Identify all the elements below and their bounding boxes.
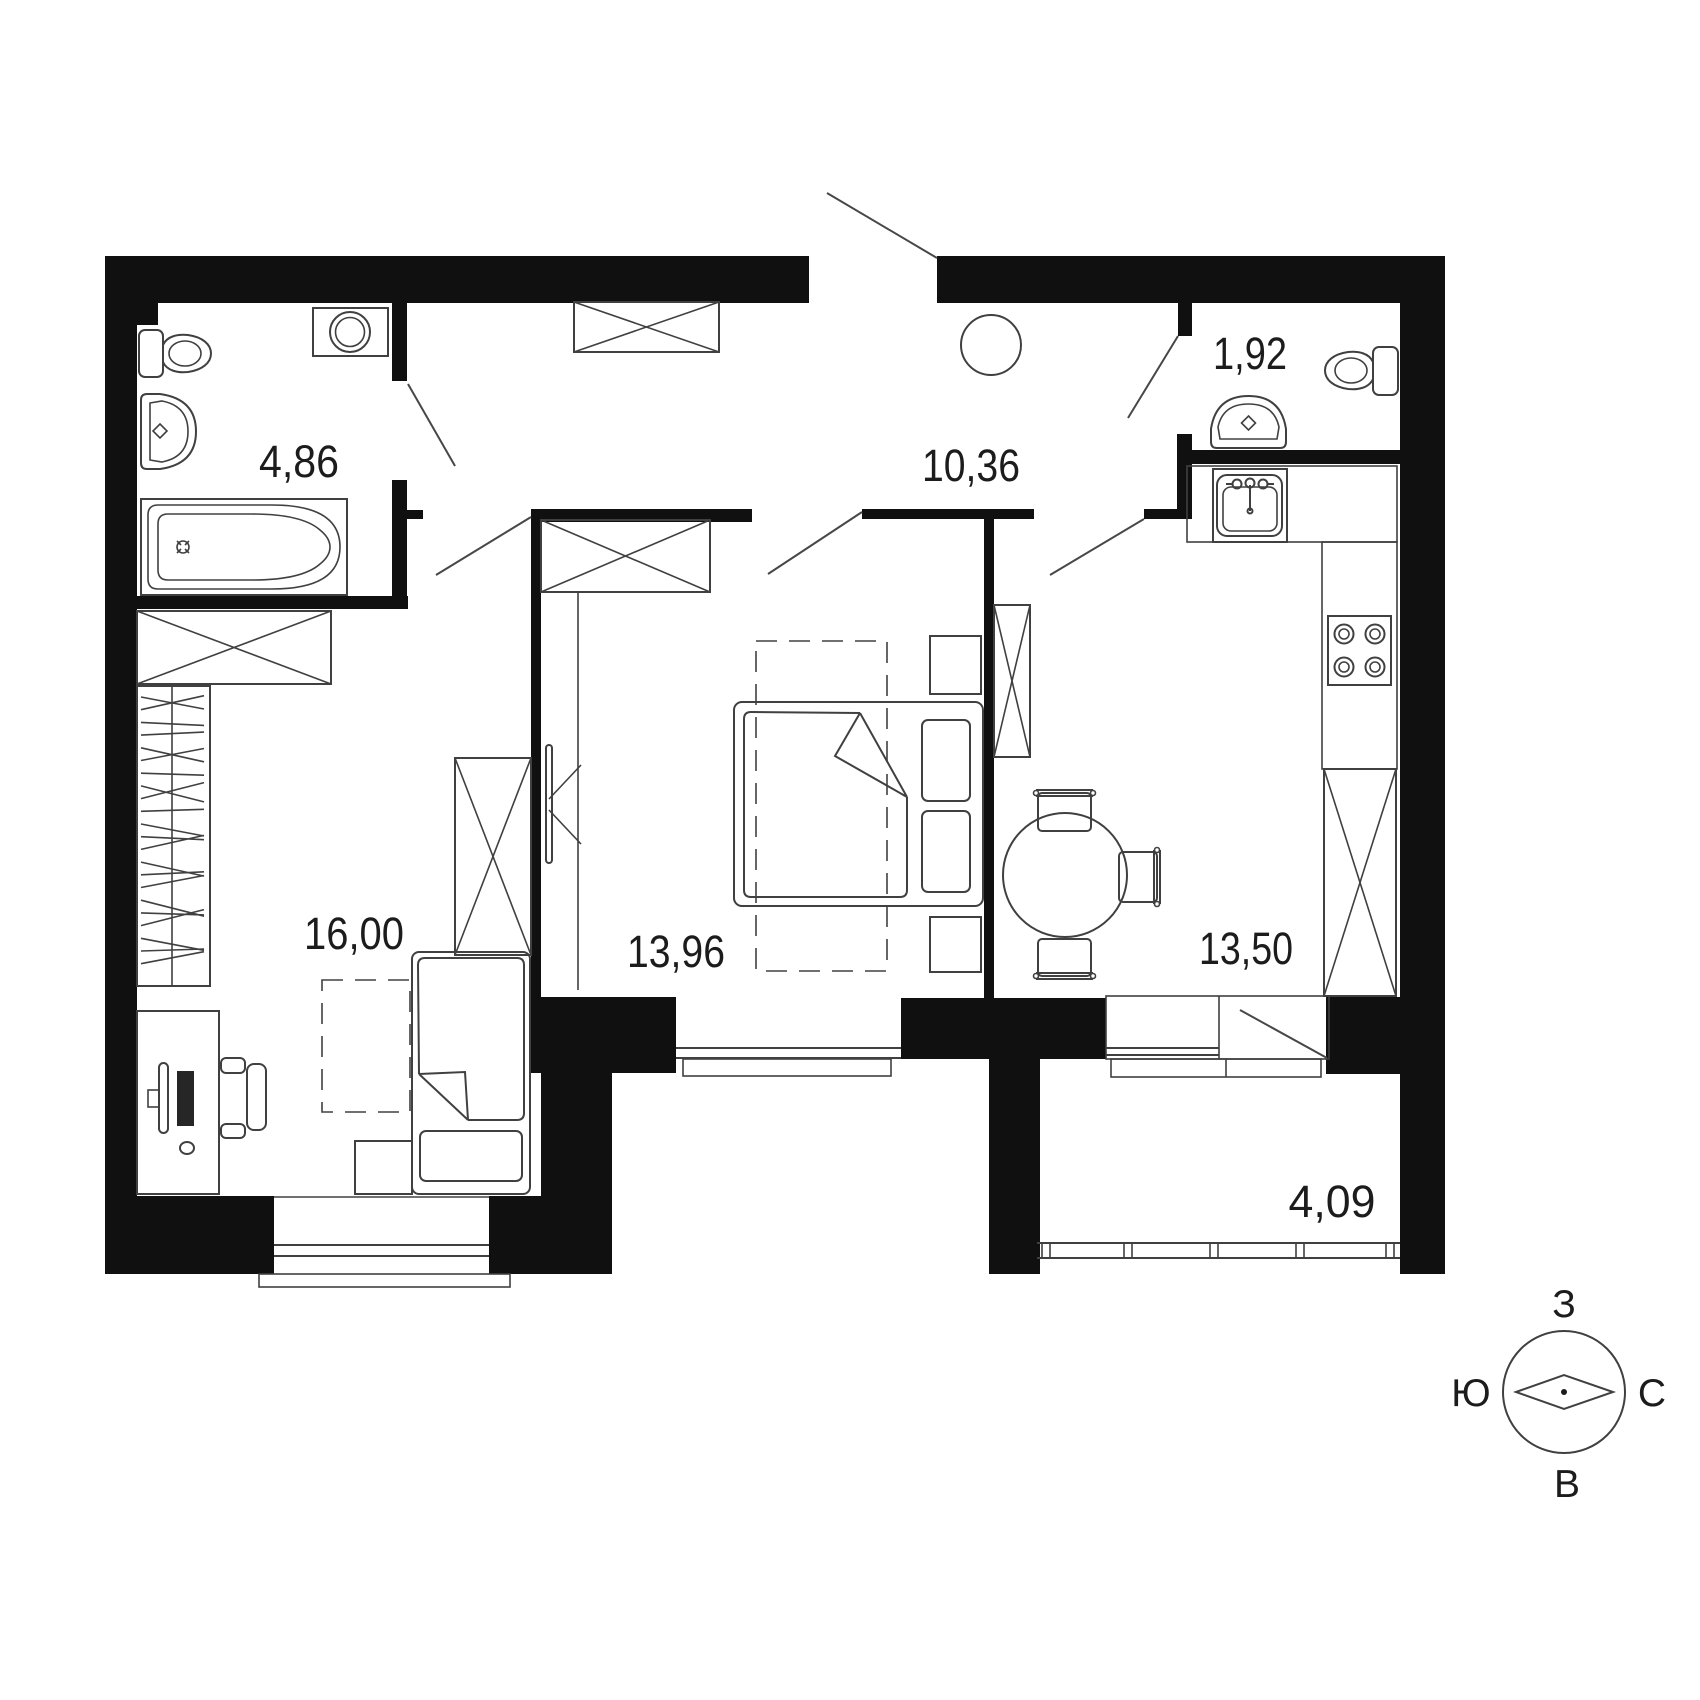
svg-text:З: З: [1552, 1283, 1576, 1326]
svg-text:В: В: [1554, 1463, 1580, 1506]
svg-text:10,36: 10,36: [922, 440, 1020, 491]
svg-text:1,92: 1,92: [1213, 328, 1287, 379]
svg-text:С: С: [1638, 1372, 1666, 1415]
svg-text:16,00: 16,00: [304, 908, 404, 959]
svg-text:Ю: Ю: [1451, 1372, 1490, 1415]
svg-text:13,50: 13,50: [1199, 923, 1293, 974]
svg-text:13,96: 13,96: [627, 926, 725, 977]
svg-text:4,86: 4,86: [259, 436, 339, 487]
svg-text:4,09: 4,09: [1289, 1176, 1376, 1227]
